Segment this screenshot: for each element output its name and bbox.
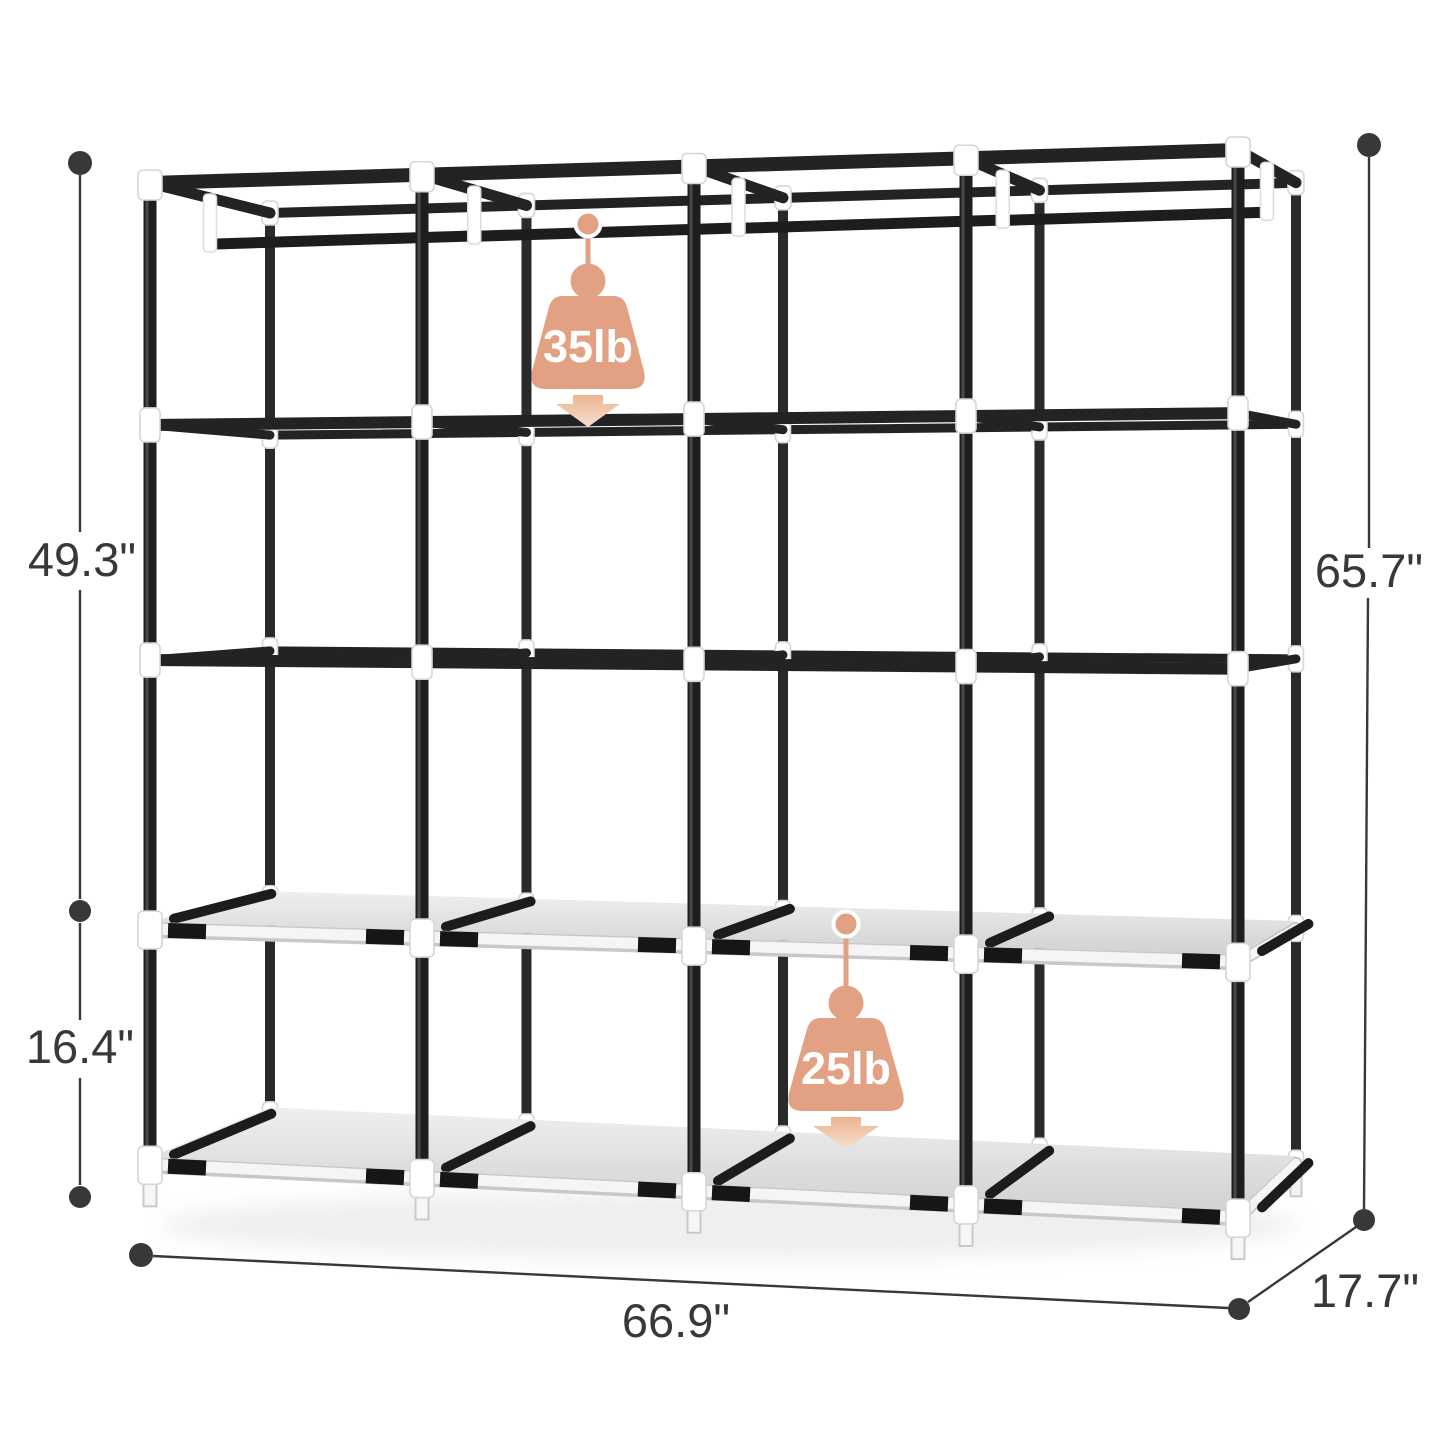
weight-attach-dot: [576, 212, 601, 237]
total-height-label: 65.7": [1315, 544, 1423, 597]
weight-knob: [571, 264, 606, 299]
shelf-capacity-label: 25lb: [801, 1043, 891, 1094]
dim-dot: [68, 151, 92, 175]
rod-capacity-label: 35lb: [543, 321, 633, 372]
rod-capacity-weight-icon: 35lb: [531, 212, 644, 428]
wardrobe-rack-frame: [138, 137, 1308, 1260]
upper-height-label: 49.3": [28, 533, 136, 586]
weight-attach-dot: [834, 912, 859, 937]
dim-dot: [69, 1186, 91, 1208]
dim-dot: [69, 900, 91, 922]
front-poles: [147, 154, 1238, 1218]
dim-dot: [1228, 1298, 1250, 1320]
product-dimension-diagram: 35lb 25lb 49.3" 16.4" 65.7": [0, 0, 1445, 1445]
dim-dot: [129, 1243, 153, 1267]
width-label: 66.9": [622, 1294, 730, 1347]
dim-dot: [1357, 133, 1381, 157]
dim-line-total-height: [1364, 598, 1368, 1209]
weight-knob: [829, 986, 864, 1021]
lower-height-label: 16.4": [26, 1020, 134, 1073]
diagram-canvas: 35lb 25lb 49.3" 16.4" 65.7": [0, 0, 1445, 1445]
depth-label: 17.7": [1311, 1264, 1419, 1317]
